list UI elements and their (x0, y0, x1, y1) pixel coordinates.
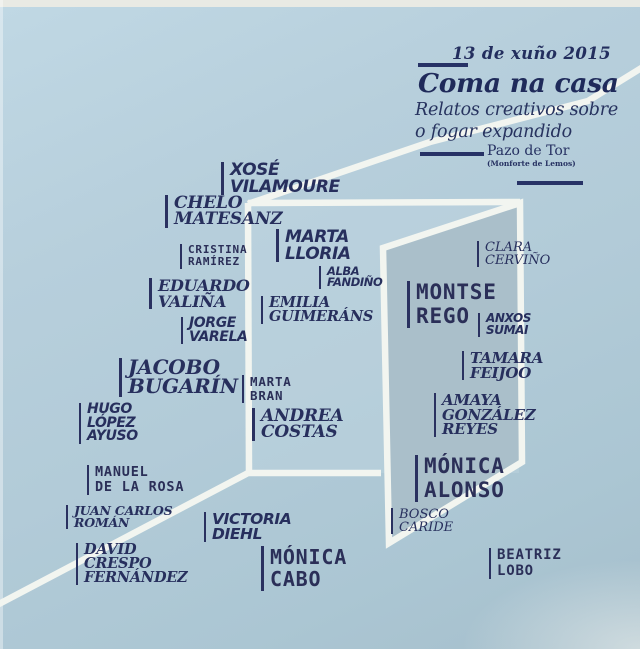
name-bosco-caride: BOSCOCARIDE (391, 508, 453, 534)
event-title: Coma na casa (418, 68, 619, 99)
name-marta-bran: MARTABRAN (242, 375, 292, 403)
name-amaya-gonzalez-reyes: AMAYAGONZÁLEZREYES (434, 393, 536, 437)
name-jorge-varela: JORGEVARELA (181, 317, 247, 344)
title-top-bar (418, 63, 468, 67)
wall-left-line (248, 203, 249, 474)
venue-name: Pazo de Tor (487, 143, 569, 159)
name-beatriz-lobo: BEATRIZLOBO (489, 548, 562, 579)
name-juan-carlos-roman: JUAN CARLOSROMÁN (66, 505, 172, 529)
name-emilia-guimerans: EMILIAGUIMERÁNS (261, 296, 373, 324)
event-subtitle-line1: Relatos creativos sobre (415, 100, 618, 120)
name-manuel-de-la-rosa: MANUELDE LA ROSA (87, 465, 184, 495)
venue-location: (Monforte de Lemos) (487, 159, 576, 168)
name-andrea-costas: ANDREACOSTAS (252, 408, 344, 441)
event-subtitle-line2: o fogar expandido (415, 122, 572, 142)
name-xose-vilamoure: XOSÉVILAMOURE (221, 162, 340, 195)
name-alba-fandino: ALBAFANDIÑO (319, 266, 382, 289)
name-tamara-feijoo: TAMARAFEIJOO (462, 351, 543, 380)
name-cristina-ramirez: CRISTINARAMÍREZ (180, 244, 247, 269)
name-victoria-diehl: VICTORIADIEHL (204, 512, 291, 542)
decorative-bar (517, 181, 583, 185)
event-date: 13 de xuño 2015 (452, 44, 611, 63)
name-david-crespo-fernandez: DAVIDCRESPOFERNÁNDEZ (76, 543, 188, 585)
venue-bar (420, 152, 484, 156)
name-monica-alonso: MÓNICAALONSO (415, 455, 505, 502)
name-monica-cabo: MÓNICACABO (261, 546, 347, 591)
wall-top-line (248, 202, 520, 203)
name-clara-cervino: CLARACERVIÑO (477, 241, 550, 267)
name-marta-lloria: MARTALLORIA (276, 229, 351, 262)
name-jacobo-bugarin: JACOBOBUGARÍN (119, 358, 238, 397)
name-anxos-sumai: ANXOSSUMAI (478, 313, 531, 337)
name-eduardo-valina: EDUARDOVALIÑA (149, 278, 250, 309)
name-chelo-matesanz: CHELOMATESANZ (165, 195, 283, 228)
name-hugo-lopez-ayuso: HUGOLÓPEZAYUSO (79, 403, 138, 444)
event-poster: 13 de xuño 2015 Coma na casa Relatos cre… (0, 0, 640, 649)
